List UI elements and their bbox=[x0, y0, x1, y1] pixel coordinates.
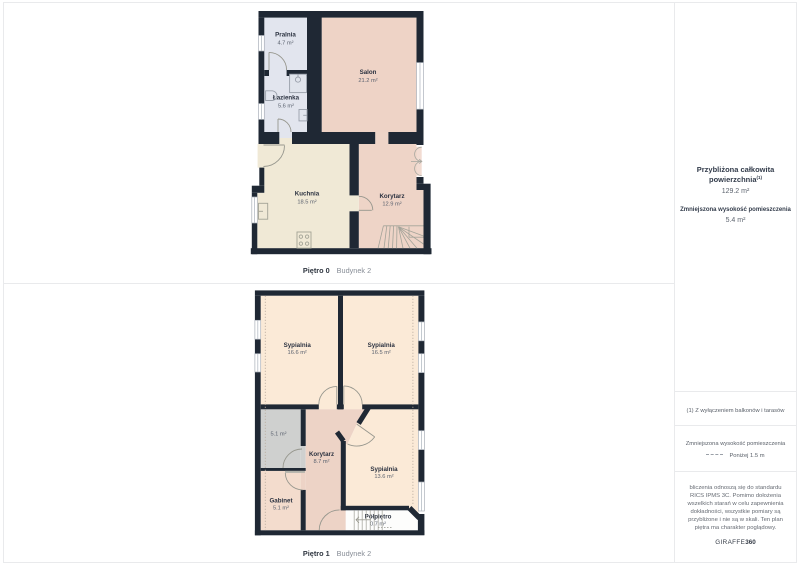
svg-text:4.7 m²: 4.7 m² bbox=[277, 41, 293, 47]
svg-text:13.6 m²: 13.6 m² bbox=[374, 474, 393, 480]
svg-text:Sypialnia: Sypialnia bbox=[370, 466, 398, 473]
svg-text:12.9 m²: 12.9 m² bbox=[382, 202, 401, 208]
svg-text:5.1 m²: 5.1 m² bbox=[273, 506, 289, 512]
svg-text:21.2 m²: 21.2 m² bbox=[358, 78, 377, 84]
svg-text:16.5 m²: 16.5 m² bbox=[372, 350, 391, 356]
svg-text:18.5 m²: 18.5 m² bbox=[297, 199, 316, 205]
svg-text:Korytarz: Korytarz bbox=[309, 451, 334, 458]
svg-text:8.7 m²: 8.7 m² bbox=[313, 459, 329, 465]
svg-text:Kuchnia: Kuchnia bbox=[295, 191, 320, 198]
svg-text:5.1 m²: 5.1 m² bbox=[270, 432, 286, 438]
svg-text:Gabinet: Gabinet bbox=[269, 498, 292, 505]
svg-text:16.6 m²: 16.6 m² bbox=[288, 350, 307, 356]
svg-text:5.6 m²: 5.6 m² bbox=[278, 104, 294, 110]
svg-text:Sypialnia: Sypialnia bbox=[284, 342, 312, 349]
svg-text:Korytarz: Korytarz bbox=[379, 193, 404, 200]
svg-text:Sypialnia: Sypialnia bbox=[368, 342, 396, 349]
svg-text:Pralnia: Pralnia bbox=[275, 32, 296, 39]
svg-text:Salon: Salon bbox=[360, 69, 377, 76]
